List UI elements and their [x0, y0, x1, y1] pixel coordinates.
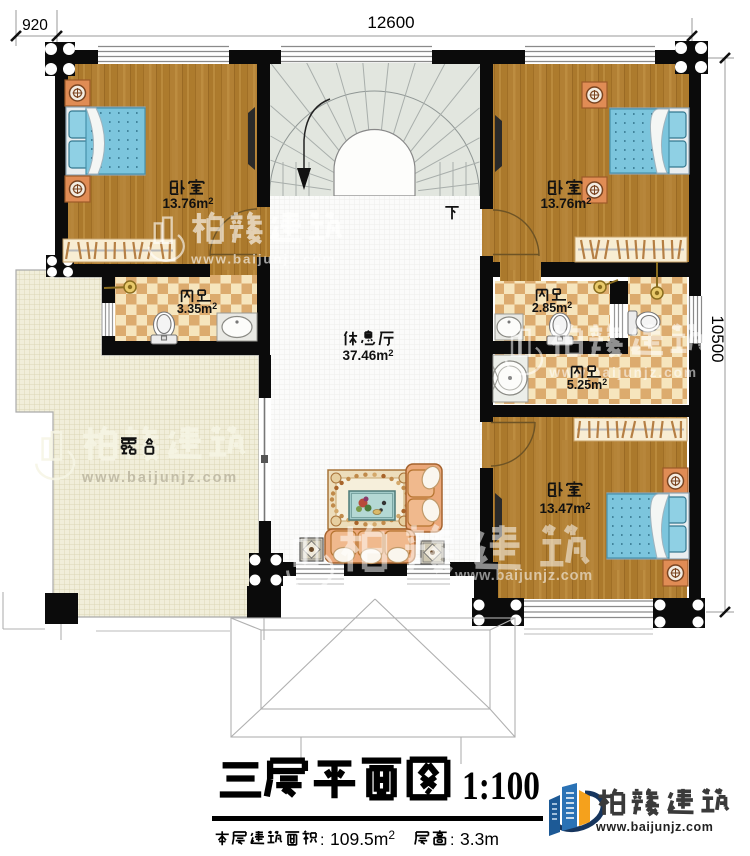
svg-text:3.35m2: 3.35m2	[177, 301, 217, 316]
svg-text:13.76m2: 13.76m2	[162, 195, 213, 211]
svg-text:10500: 10500	[708, 315, 727, 362]
svg-text:www.baijunjz.com: www.baijunjz.com	[454, 568, 593, 584]
svg-text:2.85m2: 2.85m2	[532, 300, 572, 315]
svg-text:12600: 12600	[367, 13, 414, 32]
svg-text:920: 920	[22, 17, 48, 34]
svg-text:37.46m2: 37.46m2	[342, 347, 393, 363]
svg-text:3.3m: 3.3m	[460, 829, 499, 849]
svg-text::: :	[450, 832, 454, 849]
svg-text:13.47m2: 13.47m2	[539, 500, 590, 516]
svg-text:13.76m2: 13.76m2	[540, 195, 591, 211]
svg-text:www.baijunjz.com: www.baijunjz.com	[190, 252, 336, 267]
svg-text:1:100: 1:100	[462, 763, 540, 808]
svg-text::: :	[320, 832, 324, 849]
svg-text:www.baijunjz.com: www.baijunjz.com	[81, 470, 238, 486]
svg-text:5.25m2: 5.25m2	[567, 377, 607, 392]
svg-text:www.baijunjz.com: www.baijunjz.com	[595, 820, 713, 834]
svg-text:109.5m2: 109.5m2	[330, 828, 395, 849]
